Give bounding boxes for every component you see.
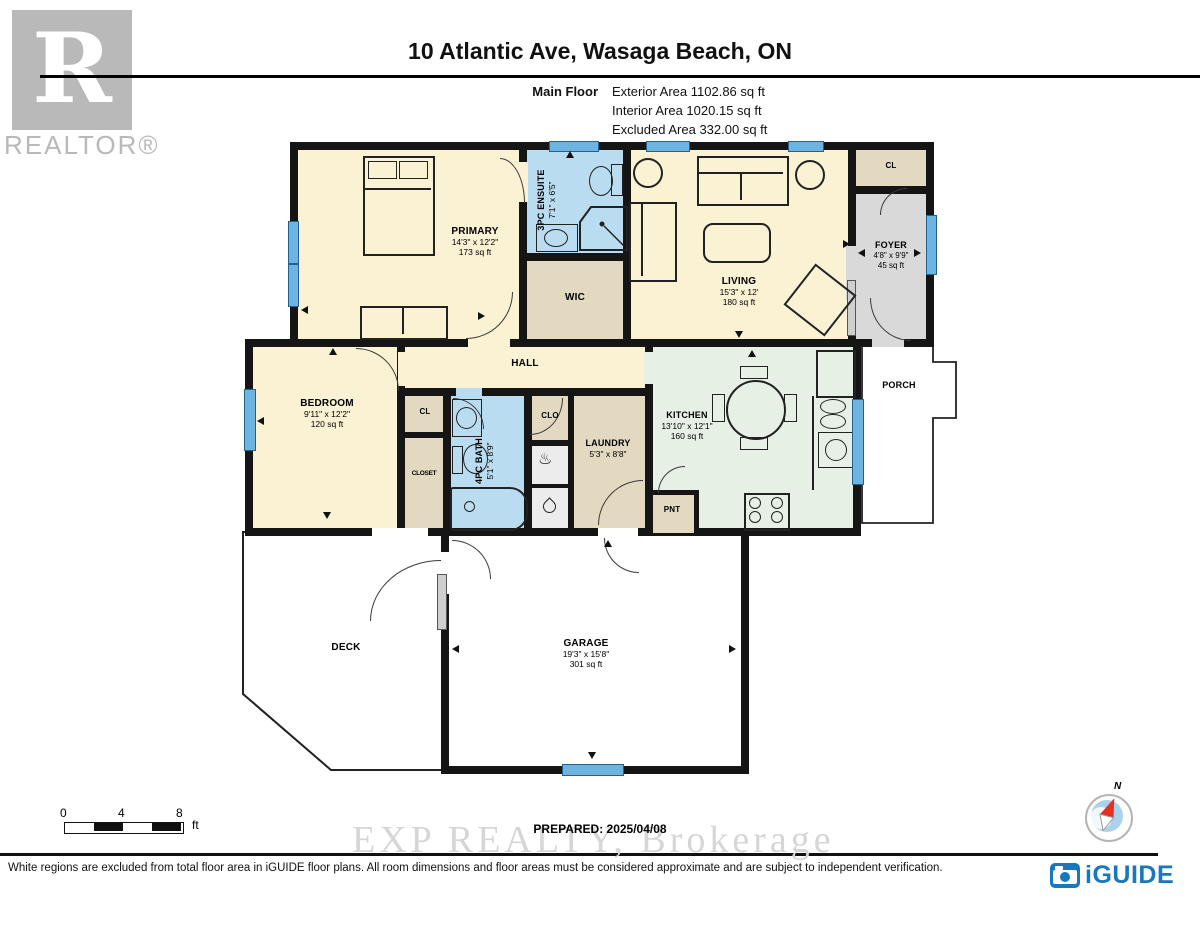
door-arrow-icon (914, 249, 921, 257)
room-label-bedroom: BEDROOM 9'11" x 12'2" 120 sq ft (282, 398, 372, 429)
compass-highlight (1090, 807, 1112, 829)
toilet-tank (452, 446, 463, 474)
door-arrow-icon (735, 331, 743, 338)
window-icon (646, 141, 690, 152)
room-dims: 19'3" x 15'8" (540, 649, 632, 659)
room-name: CLO (532, 410, 568, 421)
window-icon (852, 399, 864, 485)
sofa (697, 156, 789, 206)
loveseat (629, 202, 677, 282)
loveseat-back-line (641, 204, 643, 276)
side-table (795, 160, 825, 190)
pillow (368, 161, 397, 179)
room-label-foyer-closet: CL (866, 160, 916, 171)
room-label-living: LIVING 15'3" x 12' 180 sq ft (695, 276, 783, 307)
room-dims: 15'3" x 12' (695, 287, 783, 297)
room-label-bedroom-closet: CLOSET (405, 468, 443, 479)
room-area: 180 sq ft (695, 297, 783, 307)
scale-segment (65, 823, 94, 831)
camera-icon (1050, 863, 1080, 888)
room-label-primary: PRIMARY 14'3" x 12'2" 173 sq ft (425, 226, 525, 257)
prepared-date: PREPARED: 2025/04/08 (450, 822, 750, 836)
room-label-deck: DECK (316, 642, 376, 653)
room-name: 4PC BATH (474, 409, 485, 513)
window-icon (244, 389, 256, 451)
room-label-clo: CLO (532, 410, 568, 421)
kitchen-sink (820, 399, 846, 414)
stat-exterior: Exterior Area 1102.86 sq ft (612, 84, 765, 99)
scale-segment (123, 823, 152, 831)
door-arrow-icon (452, 645, 459, 653)
disclaimer-text: White regions are excluded from total fl… (8, 862, 1018, 874)
door-arrow-icon (329, 348, 337, 355)
dishwasher-dial (825, 439, 847, 461)
room-name: PRIMARY (425, 226, 525, 237)
door-arrow-icon (301, 306, 308, 314)
side-table (633, 158, 663, 188)
stat-excluded: Excluded Area 332.00 sq ft (612, 122, 767, 137)
porch-outline (862, 345, 956, 523)
kitchen-sink (820, 414, 846, 429)
door-gap (468, 337, 510, 349)
chair (740, 366, 768, 379)
compass-icon (1085, 794, 1133, 842)
room-dims: 14'3" x 12'2" (425, 237, 525, 247)
room-name: CL (406, 406, 444, 417)
room-dims: 5'1" x 8'9" (485, 409, 495, 513)
dining-table (726, 380, 786, 440)
bed-blanket-line (365, 188, 431, 190)
door-arrow-icon (748, 350, 756, 357)
room-name: LIVING (695, 276, 783, 287)
iguide-logo: iGUIDE (1050, 861, 1195, 891)
room-dims: 13'10" x 12'1" (645, 421, 729, 431)
door-arrow-icon (257, 417, 264, 425)
room-label-garage: GARAGE 19'3" x 15'8" 301 sq ft (540, 638, 632, 669)
floor-label: Main Floor (430, 84, 598, 99)
door-arrow-icon (604, 540, 612, 547)
room-label-ensuite: 3PC ENSUITE 7'1" x 6'5" (536, 148, 562, 252)
room-name: HALL (495, 358, 555, 369)
window-icon (549, 141, 599, 152)
room-label-bedroom-cl: CL (406, 406, 444, 417)
room-name: BEDROOM (282, 398, 372, 409)
coffee-table (703, 223, 771, 263)
camera-flash (1055, 866, 1063, 870)
door-arrow-icon (323, 512, 331, 519)
burner (749, 511, 761, 523)
fridge (816, 350, 856, 398)
room-name: KITCHEN (645, 410, 729, 421)
room-area: 173 sq ft (425, 247, 525, 257)
room-name: PNT (652, 504, 692, 515)
room-name: LAUNDRY (568, 438, 648, 449)
compass-n-label: N (1114, 781, 1121, 792)
scale-segment (94, 823, 123, 831)
scale-tick-4: 4 (118, 806, 125, 820)
burner (771, 497, 783, 509)
door-gap (644, 352, 655, 384)
door-arrow-icon (858, 249, 865, 257)
scale-tick-0: 0 (60, 806, 67, 820)
dresser (360, 306, 448, 340)
room-label-laundry: LAUNDRY 5'3" x 8'8" (568, 438, 648, 459)
door-arrow-icon (478, 312, 485, 320)
room-area: 45 sq ft (858, 261, 924, 271)
room-area: 160 sq ft (645, 431, 729, 441)
room-name: CLOSET (405, 468, 443, 479)
room-name: PORCH (868, 380, 930, 391)
door-arrow-icon (588, 752, 596, 759)
page-title: 10 Atlantic Ave, Wasaga Beach, ON (0, 38, 1200, 65)
room-label-kitchen: KITCHEN 13'10" x 12'1" 160 sq ft (645, 410, 729, 441)
door-arrow-icon (566, 151, 574, 158)
garage-door-icon (562, 764, 624, 776)
room-area: 120 sq ft (282, 419, 372, 429)
room-label-bath: 4PC BATH 5'1" x 8'9" (474, 409, 500, 513)
door-gap (456, 388, 482, 398)
door-arrow-icon (729, 645, 736, 653)
dresser-divider (402, 308, 404, 334)
toilet (589, 166, 613, 196)
room-name: CL (866, 160, 916, 171)
furnace-icon: ♨ (538, 452, 552, 468)
door-leaf (437, 574, 447, 630)
pillow (399, 161, 428, 179)
room-name: WIC (545, 292, 605, 303)
window-icon (788, 141, 824, 152)
scale-unit: ft (192, 818, 199, 832)
chair (784, 394, 797, 422)
room-name: GARAGE (540, 638, 632, 649)
iguide-logo-text: iGUIDE (1085, 861, 1174, 890)
header-divider (40, 75, 1200, 78)
room-label-pantry: PNT (652, 504, 692, 515)
burner (771, 511, 783, 523)
room-dims: 5'3" x 8'8" (568, 449, 648, 459)
counter-edge (812, 396, 814, 490)
camera-lens (1060, 872, 1070, 882)
stat-interior: Interior Area 1020.15 sq ft (612, 103, 762, 118)
scale-bar (64, 822, 184, 834)
chair (740, 437, 768, 450)
room-area: 301 sq ft (540, 659, 632, 669)
toilet-tank (611, 164, 623, 196)
room-label-hall: HALL (495, 358, 555, 369)
door-gap (398, 352, 407, 386)
burner (749, 497, 761, 509)
room-label-porch: PORCH (868, 380, 930, 391)
room-dims: 9'11" x 12'2" (282, 409, 372, 419)
scale-segment (152, 823, 181, 831)
window-icon (288, 221, 299, 264)
sofa-cushion-line (740, 174, 742, 200)
room-bedroom-closet (405, 438, 443, 528)
room-dims: 7'1" x 6'5" (547, 148, 557, 252)
door-gap (372, 528, 428, 538)
room-label-wic: WIC (545, 292, 605, 303)
window-icon (926, 215, 937, 275)
room-name: 3PC ENSUITE (536, 148, 547, 252)
room-name: DECK (316, 642, 376, 653)
floor-plan-page: R REALTOR® 10 Atlantic Ave, Wasaga Beach… (0, 0, 1200, 927)
scale-tick-8: 8 (176, 806, 183, 820)
window-icon (288, 264, 299, 307)
door-arrow-icon (843, 240, 850, 248)
